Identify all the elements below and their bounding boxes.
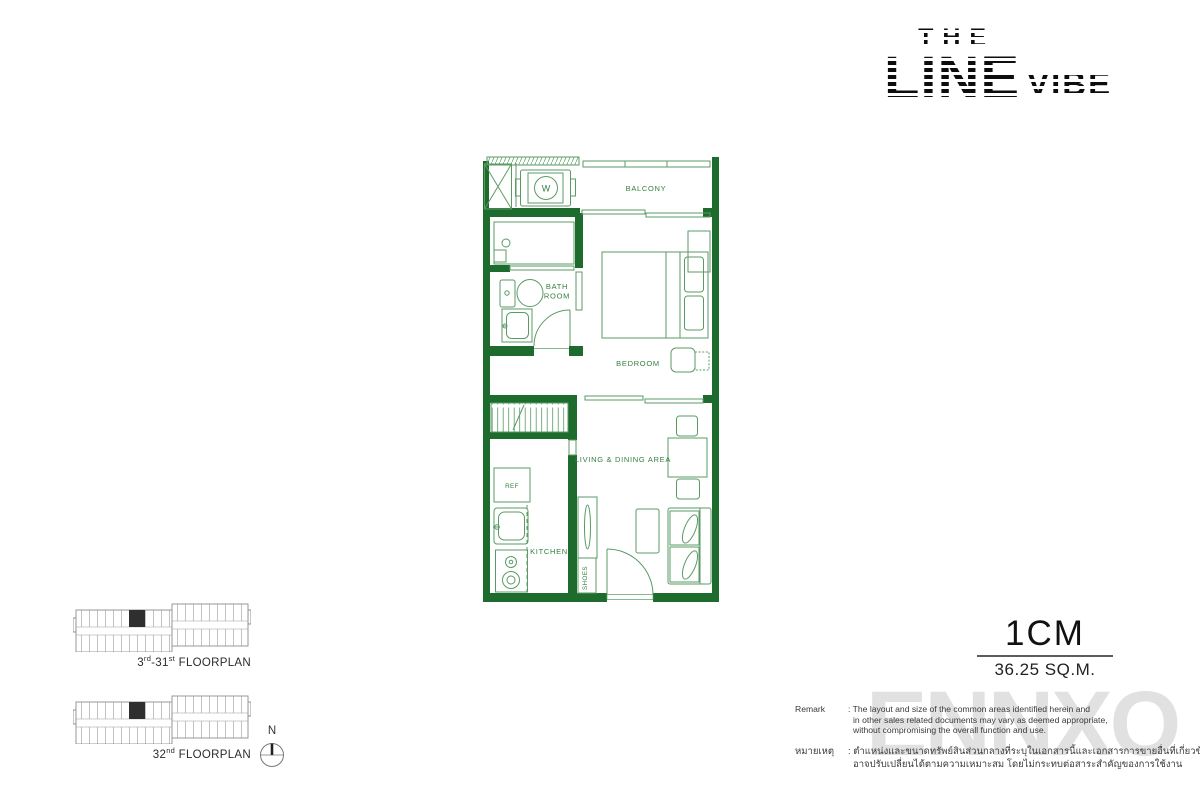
walls	[483, 157, 719, 602]
bed-icon	[602, 231, 710, 338]
unit-floorplan: BALCONY W BATH ROOM BEDROOM LIVING & DIN…	[480, 153, 724, 605]
keyplan-2-label: 32nd FLOORPLAN	[73, 746, 251, 761]
label-living: LIVING & DINING AREA	[575, 455, 671, 464]
logo-word-line: LINE	[884, 51, 1020, 104]
plan-lines	[485, 157, 712, 600]
sliding-partition	[585, 396, 643, 400]
remark-line: อาจปรับเปลี่ยนได้ตามความเหมาะสม โดยไม่กร…	[848, 758, 1200, 771]
remark-line: in other sales related documents may var…	[848, 715, 1108, 726]
sofa-icon	[668, 508, 711, 584]
keyplan-32nd	[73, 692, 251, 744]
sliding-door	[646, 213, 710, 217]
label-bathroom-1: BATH	[546, 282, 568, 291]
wardrobe-icon	[491, 403, 568, 432]
tv-console-icon	[578, 497, 597, 558]
remark-text-en: : The layout and size of the common area…	[848, 704, 1108, 736]
compass-n-label: N	[268, 725, 276, 737]
label-kitchen: KITCHEN	[530, 547, 568, 556]
sliding-door	[582, 210, 645, 214]
remark-line: without compromising the overall functio…	[848, 725, 1108, 736]
keyplan-3rd-31st	[73, 600, 251, 652]
bathroom-door	[534, 310, 570, 349]
label-ref: REF	[505, 483, 519, 490]
brand-logo: THE LINE VIBE	[884, 26, 1112, 104]
coffee-table-icon	[636, 509, 659, 553]
label-bathroom-2: ROOM	[544, 292, 570, 301]
stove-icon	[496, 550, 528, 592]
bedside-bench-icon	[671, 348, 709, 372]
sliding-partition	[645, 399, 703, 403]
unit-divider	[977, 655, 1113, 657]
remark-line: : ตำแหน่งและขนาดทรัพย์สินส่วนกลางที่ระบุ…	[848, 745, 1200, 758]
highlighted-unit	[129, 702, 145, 719]
entrance-door	[607, 549, 653, 600]
label-balcony: BALCONY	[626, 184, 667, 193]
label-bedroom: BEDROOM	[616, 359, 660, 368]
keyplan-1-label: 3rd-31st FLOORPLAN	[73, 654, 251, 669]
toilet-icon	[500, 280, 543, 308]
dining-set-icon	[668, 416, 707, 499]
remark-label-en: Remark	[795, 704, 848, 736]
remark-label-th: หมายเหตุ	[795, 745, 848, 771]
unit-type: 1CM	[977, 616, 1113, 653]
remark-line: : The layout and size of the common area…	[848, 704, 1108, 715]
remark-block: Remark : The layout and size of the comm…	[795, 704, 1200, 771]
water-heater-icon	[502, 239, 510, 247]
unit-info: 1CM 36.25 SQ.M.	[977, 616, 1113, 680]
north-compass-icon: N	[250, 722, 294, 774]
logo-the-line: THE LINE	[884, 26, 1020, 104]
label-shoes: SHOES	[582, 566, 589, 590]
bathroom-sink-icon	[502, 309, 532, 342]
remark-text-th: : ตำแหน่งและขนาดทรัพย์สินส่วนกลางที่ระบุ…	[848, 745, 1200, 771]
kitchen-sink-icon	[493, 508, 528, 544]
label-washer: W	[542, 184, 551, 194]
logo-word-vibe: VIBE	[1027, 67, 1112, 104]
floorplan-brochure-page: { "logo": { "the": "THE", "line": "LINE"…	[0, 0, 1200, 800]
balcony-railing-glass	[583, 161, 710, 167]
highlighted-unit	[129, 610, 145, 627]
